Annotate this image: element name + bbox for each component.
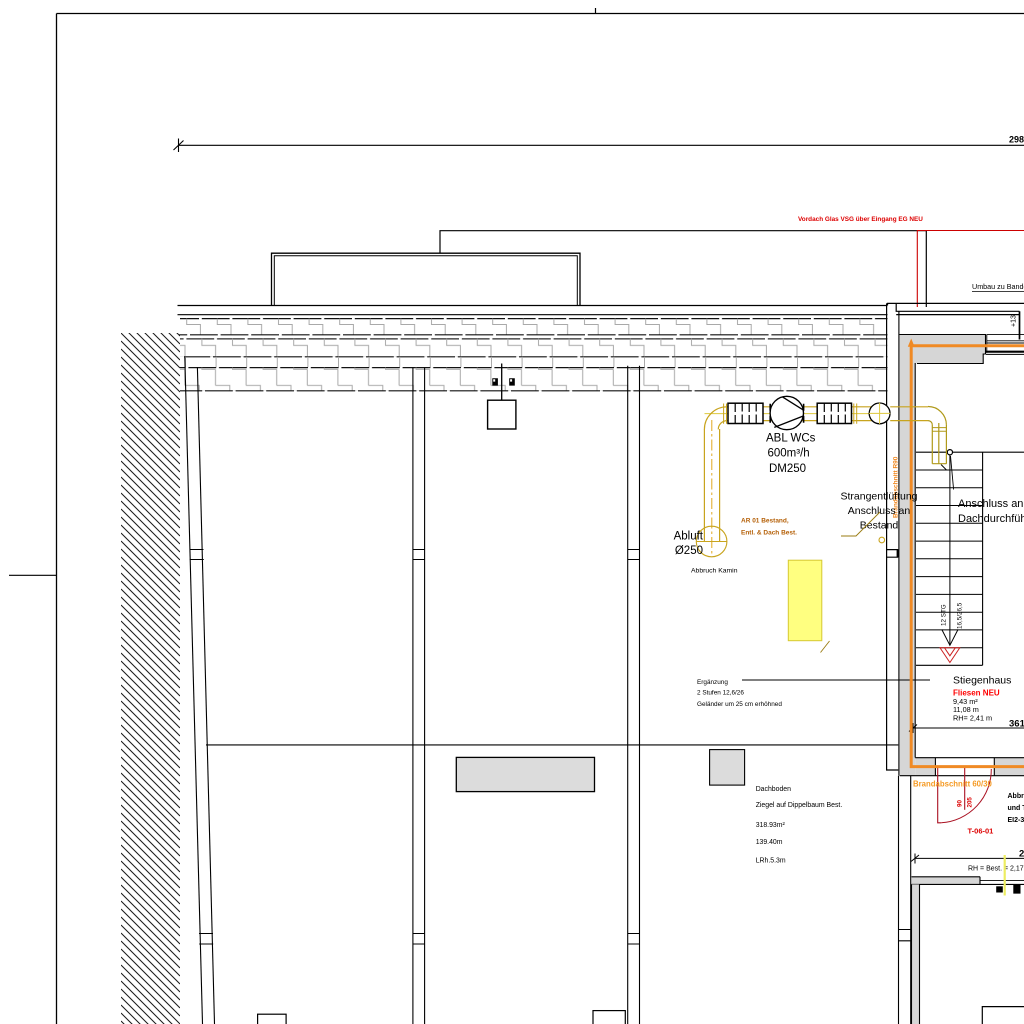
svg-text:T-06-01: T-06-01: [968, 827, 994, 836]
svg-text:Ziegel auf Dippelbaum Best.: Ziegel auf Dippelbaum Best.: [756, 802, 843, 809]
svg-text:2981: 2981: [1009, 135, 1024, 145]
svg-text:2: 2: [1019, 849, 1024, 860]
svg-text:RH= 2,41 m: RH= 2,41 m: [953, 714, 992, 723]
svg-text:Abbruch Kamin: Abbruch Kamin: [691, 568, 738, 575]
svg-text:Ø250: Ø250: [675, 545, 703, 557]
svg-text:16,5/26,5: 16,5/26,5: [957, 602, 964, 629]
svg-text:RH = Best. = 2,17 m: RH = Best. = 2,17 m: [968, 866, 1024, 873]
svg-text:600m³/h: 600m³/h: [768, 448, 810, 460]
svg-text:Dachdurchführung: Dachdurchführung: [958, 513, 1024, 525]
svg-text:205: 205: [967, 797, 974, 808]
svg-text:Dachboden: Dachboden: [756, 786, 791, 793]
svg-text:Entl. & Dach Best.: Entl. & Dach Best.: [741, 530, 797, 537]
svg-text:Bestand: Bestand: [860, 520, 899, 532]
svg-text:LRh.5.3m: LRh.5.3m: [756, 858, 786, 865]
svg-text:Strangentlüftung: Strangentlüftung: [840, 491, 917, 503]
svg-text:und Tür: und Tür: [1008, 805, 1024, 812]
svg-text:Umbau zu Bande: Umbau zu Bande: [972, 282, 1024, 291]
svg-text:139.40m: 139.40m: [756, 839, 783, 846]
svg-text:Vordach Glas VSG über Eingang: Vordach Glas VSG über Eingang EG NEU: [798, 216, 923, 223]
svg-text:318.93m²: 318.93m²: [756, 822, 786, 829]
svg-text:Anschluss an: Anschluss an: [958, 498, 1023, 510]
svg-text:361: 361: [1009, 719, 1024, 730]
svg-text:Abluft: Abluft: [674, 531, 704, 543]
svg-text:AR 01 Bestand,: AR 01 Bestand,: [741, 518, 789, 525]
svg-text:2 Stufen 12,6/26: 2 Stufen 12,6/26: [697, 690, 744, 697]
svg-text:Anschluss an: Anschluss an: [848, 505, 911, 517]
svg-text:+13: +13: [1011, 315, 1018, 327]
svg-text:90: 90: [957, 800, 964, 807]
svg-text:Geländer um 25 cm erhöhned: Geländer um 25 cm erhöhned: [697, 701, 782, 708]
svg-text:ABL WCs: ABL WCs: [766, 433, 816, 445]
svg-text:Ergänzung: Ergänzung: [697, 679, 728, 686]
svg-text:DM250: DM250: [769, 463, 806, 475]
svg-text:Abbruc: Abbruc: [1008, 793, 1024, 800]
svg-text:Stiegenhaus: Stiegenhaus: [953, 675, 1011, 687]
svg-text:EI2-30: EI2-30: [1008, 817, 1024, 824]
svg-text:12 STG: 12 STG: [941, 604, 948, 626]
svg-text:Brandabschnitt 60/30: Brandabschnitt 60/30: [913, 780, 993, 789]
